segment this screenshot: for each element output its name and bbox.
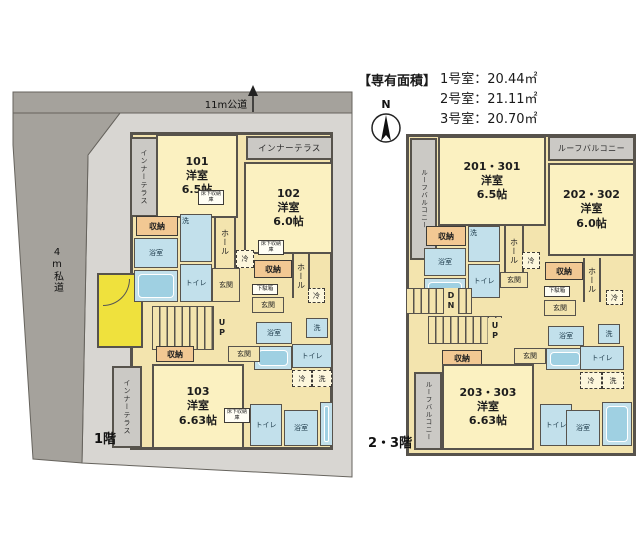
roof-balcony-203: ルーフバルコニー xyxy=(414,372,442,450)
bath-103: 浴室 xyxy=(284,410,318,446)
washer-label: 洗 xyxy=(602,372,624,389)
bathtub-icon xyxy=(606,406,628,442)
floor23-stairs-down-flight xyxy=(406,288,472,314)
bathtub-icon xyxy=(550,352,580,366)
washer-202: 洗 xyxy=(598,324,620,344)
road-left-label: 4m私道 xyxy=(48,238,66,302)
floor1-inner-terrace-101: インナーテラス xyxy=(130,137,158,217)
room-201-type: 洋室 xyxy=(481,174,503,188)
bathtub-101 xyxy=(134,270,178,302)
fridge-202: 冷 xyxy=(606,290,623,305)
fridge-label: 冷 xyxy=(580,372,602,389)
shoe-box-102: 下駄箱 xyxy=(252,284,278,295)
entrance-202: 玄関 xyxy=(544,300,576,316)
room-202-number: 202・302 xyxy=(563,188,620,202)
toilet-202: トイレ xyxy=(580,346,624,370)
floorplan-canvas: 【専有面積】 1号室：20.44㎡ 2号室：21.11㎡ 3号室：20.70㎡ … xyxy=(0,0,640,537)
toilet-101: トイレ xyxy=(180,264,212,302)
room-103-number: 103 xyxy=(187,385,210,399)
floor1-stairs xyxy=(152,306,214,350)
roof-balcony-top: ルーフバルコニー xyxy=(548,136,635,161)
bathtub-203 xyxy=(602,402,632,446)
washer-201: 洗 xyxy=(468,226,500,262)
floor1-room-101: 101 洋室 6.5帖 xyxy=(156,134,238,218)
floor1-inner-terrace-top: インナーテラス xyxy=(246,136,333,160)
legend-area-1: 1号室：20.44㎡ xyxy=(440,70,538,90)
fridge-washer-202: 冷 洗 xyxy=(580,372,624,389)
bath-202: 浴室 xyxy=(548,326,584,346)
bathtub-icon xyxy=(258,350,288,366)
underfloor-storage-101: 床下収納庫 xyxy=(198,190,224,205)
room-101-number: 101 xyxy=(186,155,209,169)
room-201-size: 6.5帖 xyxy=(477,188,508,202)
legend-area-3: 3号室：20.70㎡ xyxy=(440,110,538,130)
underfloor-storage-103: 床下収納庫 xyxy=(224,408,250,423)
room-203-size: 6.63帖 xyxy=(469,414,507,428)
bathtub-202 xyxy=(546,348,584,370)
room-102-number: 102 xyxy=(277,187,300,201)
room-101-type: 洋室 xyxy=(186,169,208,183)
floor1-label: 1階 xyxy=(94,428,116,447)
hall-101: ホール xyxy=(214,216,236,268)
room-203-number: 203・303 xyxy=(460,386,517,400)
toilet-201: トイレ xyxy=(468,264,500,298)
entrance-103: 玄関 xyxy=(228,346,260,362)
floor23-room-202-302: 202・302 洋室 6.0帖 xyxy=(548,163,635,256)
closet-102: 収納 xyxy=(254,260,292,278)
closet-101: 収納 xyxy=(136,216,178,236)
floor1-inner-terrace-103: インナーテラス xyxy=(112,366,142,448)
bathtub-icon xyxy=(138,274,174,298)
washer-102: 洗 xyxy=(306,318,328,338)
floor23-room-201-301: 201・301 洋室 6.5帖 xyxy=(438,136,546,226)
closet-202: 収納 xyxy=(545,262,583,280)
toilet-102: トイレ xyxy=(292,344,332,368)
floor23-label: 2・3階 xyxy=(368,432,412,451)
closet-103: 収納 xyxy=(156,346,194,362)
bathtub-103 xyxy=(320,402,333,446)
room-103-size: 6.63帖 xyxy=(179,414,217,428)
room-102-size: 6.0帖 xyxy=(273,215,304,229)
legend-area-2: 2号室：21.11㎡ xyxy=(440,90,538,110)
bath-102: 浴室 xyxy=(256,322,292,344)
entrance-102: 玄関 xyxy=(252,297,284,313)
room-102-type: 洋室 xyxy=(278,201,300,215)
road-top-label: 11m公道 xyxy=(196,94,256,112)
closet-201: 収納 xyxy=(426,226,466,246)
fridge-101: 冷 xyxy=(236,250,254,268)
floor1-stairs-up-label: UP xyxy=(214,310,230,346)
floor23-stairs-up-label: UP xyxy=(488,318,502,344)
floor23-room-203-303: 203・303 洋室 6.63帖 xyxy=(442,364,534,450)
fridge-label: 冷 xyxy=(292,370,312,387)
washer-label: 洗 xyxy=(312,370,332,387)
fridge-washer-102: 冷 洗 xyxy=(292,370,332,387)
floor23-stairs-down-label: DN xyxy=(444,288,458,314)
entrance-101: 玄関 xyxy=(212,268,240,302)
room-203-type: 洋室 xyxy=(477,400,499,414)
room-103-type: 洋室 xyxy=(187,399,209,413)
entrance-203: 玄関 xyxy=(514,348,546,364)
bath-203: 浴室 xyxy=(566,410,600,446)
room-201-number: 201・301 xyxy=(464,160,521,174)
fridge-201: 冷 xyxy=(522,252,540,269)
washer-101: 洗 xyxy=(180,214,212,262)
bath-101: 浴室 xyxy=(134,238,178,268)
fridge-102: 冷 xyxy=(308,288,325,303)
room-202-type: 洋室 xyxy=(581,202,603,216)
floor1-room-103: 103 洋室 6.63帖 xyxy=(152,364,244,449)
room-202-size: 6.0帖 xyxy=(576,217,607,231)
compass-north-label: N xyxy=(374,97,398,111)
underfloor-storage-102: 床下収納庫 xyxy=(258,240,284,255)
bathtub-icon xyxy=(324,406,329,442)
hall-202: ホール xyxy=(583,258,601,302)
door-swing-icon xyxy=(103,279,130,306)
legend-title: 【専有面積】 xyxy=(358,70,436,89)
road-top xyxy=(13,92,352,113)
bath-201: 浴室 xyxy=(424,248,466,276)
hall-201: ホール xyxy=(504,226,524,276)
shoe-box-202: 下駄箱 xyxy=(544,286,570,297)
entrance-201: 玄関 xyxy=(500,272,528,288)
toilet-103: トイレ xyxy=(250,404,282,446)
